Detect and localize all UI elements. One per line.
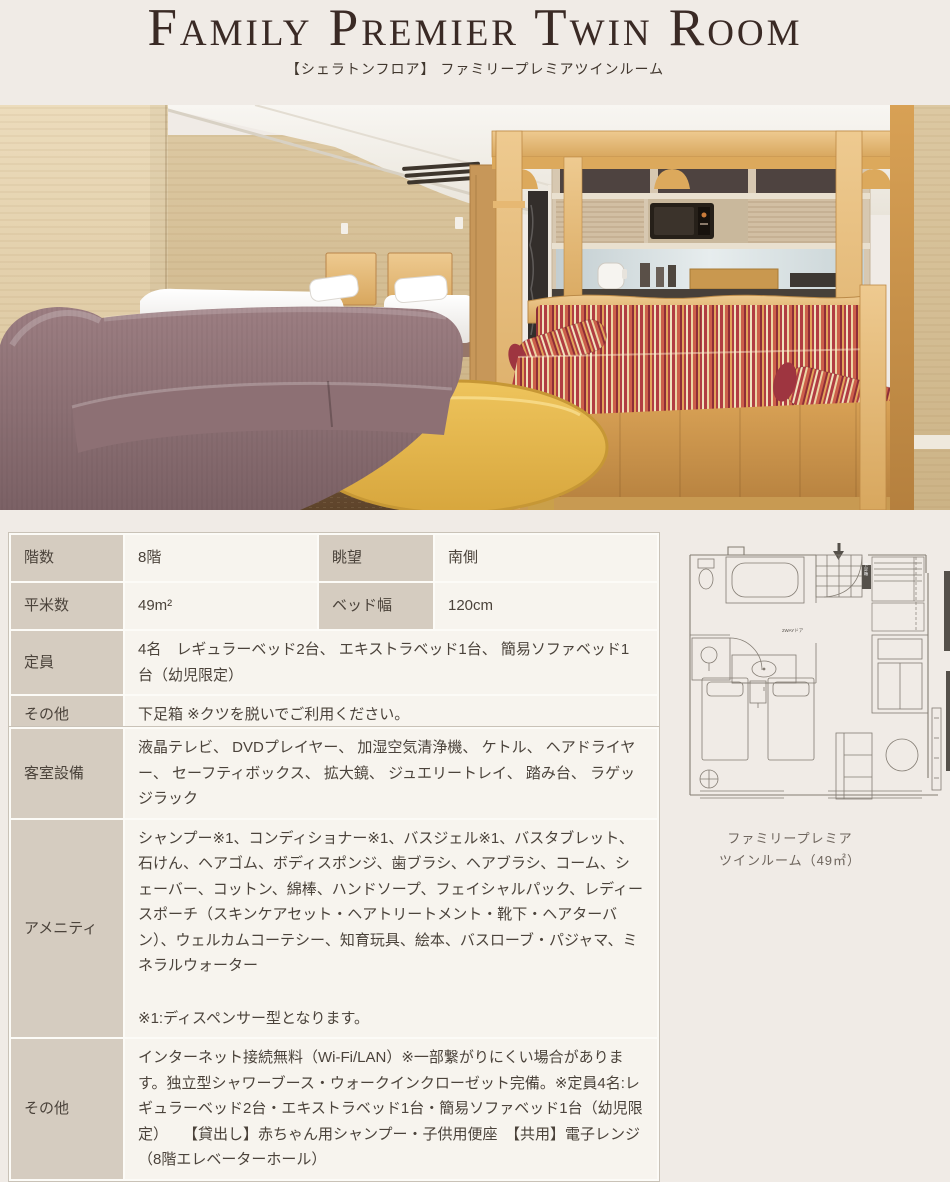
facility-value-equipment: 液晶テレビ、 DVDプレイヤー、 加湿空気清浄機、 ケトル、 ヘアドライヤー、 … xyxy=(125,729,657,818)
table-row: 定員 4名 レギュラーベッド2台、 エキストラベッド1台、 簡易ソファベッド1台… xyxy=(11,631,657,694)
wall-outlet xyxy=(341,223,348,234)
spec-label-bedwidth: ベッド幅 xyxy=(319,583,433,629)
spec-label-floor: 階数 xyxy=(11,535,123,581)
page-header: Family Premier Twin Room 【シェラトンフロア】 ファミリ… xyxy=(0,0,950,79)
plan-tv-board xyxy=(932,708,941,790)
facility-value-amenity: シャンプー※1、コンディショナー※1、バスジェル※1、バスタブレット、石けん、ヘ… xyxy=(125,820,657,1038)
room-spec-table: 階数 8階 眺望 南側 平米数 49m² ベッド幅 120cm 定員 4名 レギ… xyxy=(8,532,660,737)
facility-label-equipment: 客室設備 xyxy=(11,729,123,818)
plan-closet xyxy=(872,557,924,631)
kettle xyxy=(598,263,627,289)
amenity-tray xyxy=(690,269,778,289)
plan-entry xyxy=(816,555,862,597)
plan-wall xyxy=(946,671,950,771)
spec-value-size: 49m² xyxy=(125,583,317,629)
microwave xyxy=(650,203,714,239)
facility-label-amenity: アメニティ xyxy=(11,820,123,1038)
entry-arrow-icon xyxy=(833,543,844,560)
spec-label-view: 眺望 xyxy=(319,535,433,581)
plan-beds xyxy=(702,678,814,760)
spec-label-capacity: 定員 xyxy=(11,631,123,694)
right-wall xyxy=(890,105,950,510)
page-subtitle: 【シェラトンフロア】 ファミリープレミアツインルーム xyxy=(0,59,950,79)
floorplan-caption-line2: ツインルーム（49㎡） xyxy=(660,850,920,872)
spec-value-floor: 8階 xyxy=(125,535,317,581)
page-title: Family Premier Twin Room xyxy=(0,0,950,55)
spec-label-size: 平米数 xyxy=(11,583,123,629)
plan-bathroom xyxy=(690,555,816,691)
plan-wall xyxy=(944,571,950,651)
wall-outlet xyxy=(455,217,463,229)
floor-plan: 下足箱 2WAYドア xyxy=(676,543,950,815)
svg-text:下足箱: 下足箱 xyxy=(863,562,869,576)
floorplan-caption-line1: ファミリープレミア xyxy=(660,828,920,850)
spec-value-capacity: 4名 レギュラーベッド2台、 エキストラベッド1台、 簡易ソファベッド1台（幼児… xyxy=(125,631,657,694)
plan-side-table xyxy=(700,770,718,788)
amenity-list: シャンプー※1、コンディショナー※1、バスジェル※1、バスタブレット、石けん、ヘ… xyxy=(138,826,644,979)
room-facility-table: 客室設備 液晶テレビ、 DVDプレイヤー、 加湿空気清浄機、 ケトル、 ヘアドラ… xyxy=(8,726,660,1182)
table-row: 客室設備 液晶テレビ、 DVDプレイヤー、 加湿空気清浄機、 ケトル、 ヘアドラ… xyxy=(11,729,657,818)
plan-sofabed xyxy=(872,635,928,713)
room-photo xyxy=(0,105,950,510)
floorplan-caption: ファミリープレミア ツインルーム（49㎡） xyxy=(660,828,920,872)
plan-shoebox-label: 下足箱 xyxy=(862,562,871,589)
amenity-note: ※1:ディスペンサー型となります。 xyxy=(138,1006,644,1032)
spec-value-view: 南側 xyxy=(435,535,657,581)
table-row: 平米数 49m² ベッド幅 120cm xyxy=(11,583,657,629)
plan-table xyxy=(886,739,918,771)
plan-door-label: 2WAYドア xyxy=(782,628,804,634)
table-row: 階数 8階 眺望 南側 xyxy=(11,535,657,581)
table-row: アメニティ シャンプー※1、コンディショナー※1、バスジェル※1、バスタブレット… xyxy=(11,820,657,1038)
spec-value-bedwidth: 120cm xyxy=(435,583,657,629)
plan-sofa xyxy=(836,733,872,799)
